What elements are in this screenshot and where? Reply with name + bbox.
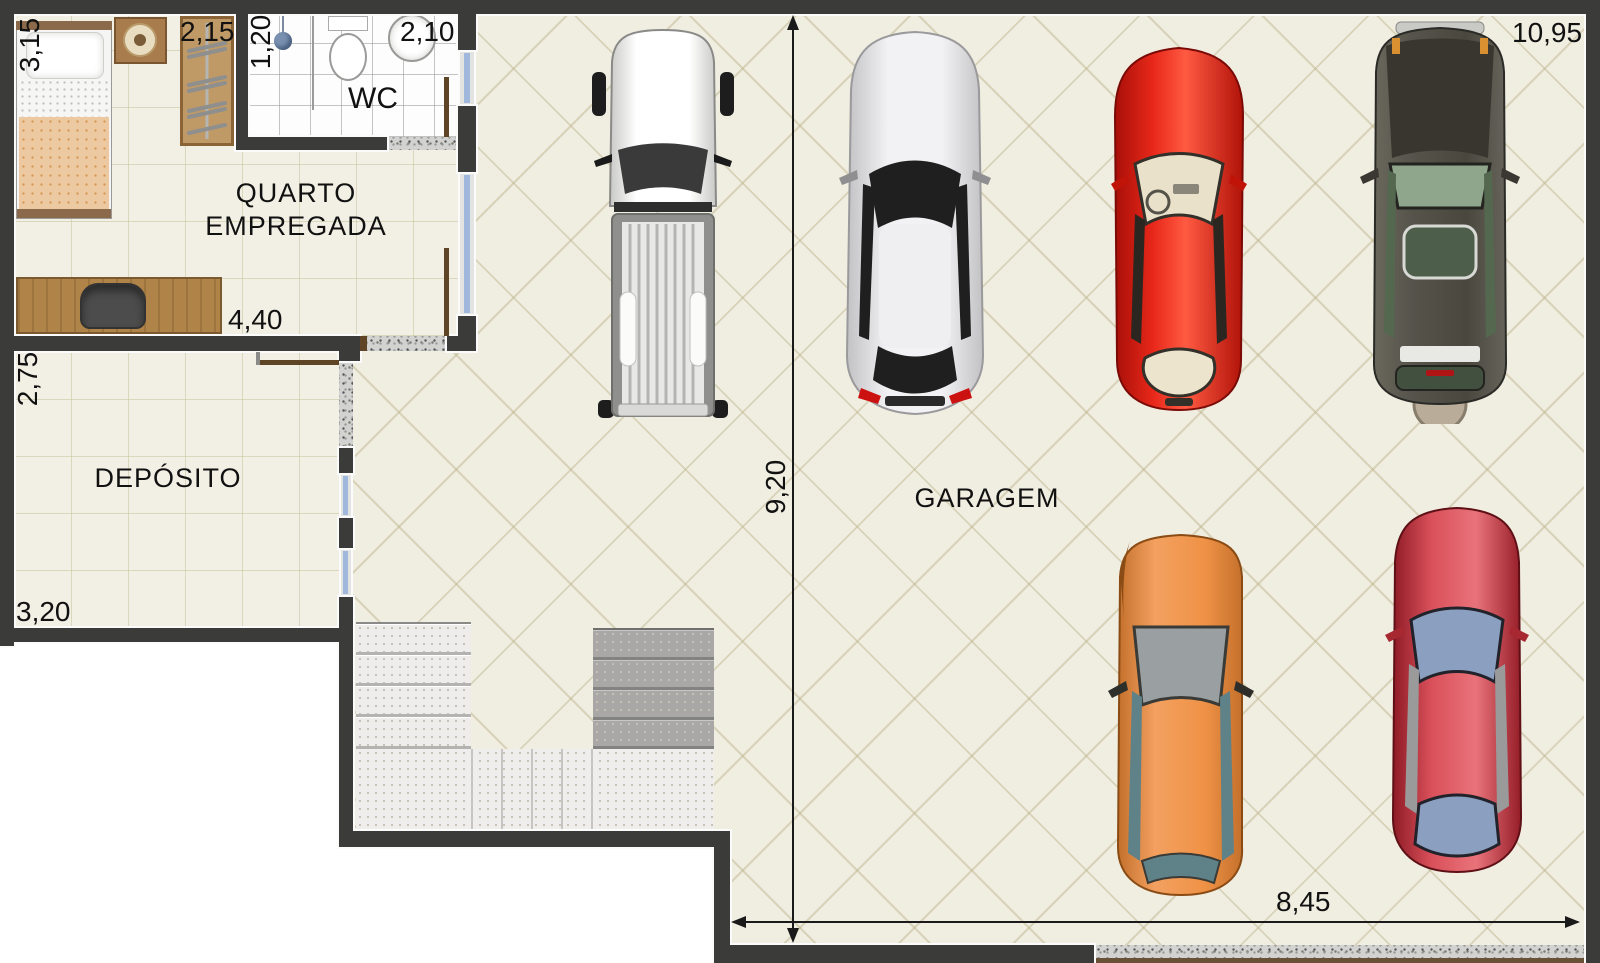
- dim-label-8-45: 8,45: [1276, 886, 1331, 918]
- car-red-sports: [1101, 44, 1257, 414]
- room-label-deposito: DEPÓSITO: [93, 462, 243, 495]
- car-dark-suv: [1352, 20, 1528, 424]
- arrow-left-icon: [731, 916, 746, 928]
- arrow-down-icon: [787, 928, 799, 943]
- dim-label-3-15: 3,15: [14, 10, 46, 80]
- dim-label-9-20: 9,20: [760, 452, 792, 522]
- car-red-sedan: [1377, 504, 1537, 876]
- dim-label-10-95: 10,95: [1512, 17, 1582, 49]
- room-label-wc: WC: [348, 82, 398, 116]
- dim-label-1-20: 1,20: [245, 7, 277, 77]
- door-frame-post: [360, 336, 367, 351]
- car-white-pickup: [588, 24, 738, 424]
- dim-label-4-40: 4,40: [228, 304, 283, 336]
- dim-label-2-75: 2,75: [12, 344, 44, 414]
- room-label-quarto: QUARTO EMPREGADA: [171, 177, 421, 243]
- deposito-door-leaf: [258, 360, 339, 365]
- arrow-right-icon: [1565, 916, 1580, 928]
- dim-label-2-10: 2,10: [400, 16, 455, 48]
- floor-plan: QUARTO EMPREGADA WC DEPÓSITO GARAGEM 3,1…: [0, 0, 1600, 963]
- bedroom-door-leaf: [444, 248, 449, 336]
- car-silver-sedan: [833, 28, 997, 418]
- dim-label-3-20: 3,20: [16, 596, 71, 628]
- room-label-quarto-line1: QUARTO: [171, 177, 421, 210]
- dim-line-garage-depth: [792, 18, 794, 936]
- arrow-up-icon: [787, 15, 799, 30]
- car-orange-suv: [1100, 531, 1262, 899]
- dim-line-garage-width: [734, 921, 1578, 923]
- dim-label-2-15: 2,15: [180, 16, 235, 48]
- room-label-garagem: GARAGEM: [897, 482, 1077, 515]
- wc-door-leaf: [444, 77, 449, 137]
- door-handle: [256, 352, 260, 365]
- room-label-quarto-line2: EMPREGADA: [171, 210, 421, 243]
